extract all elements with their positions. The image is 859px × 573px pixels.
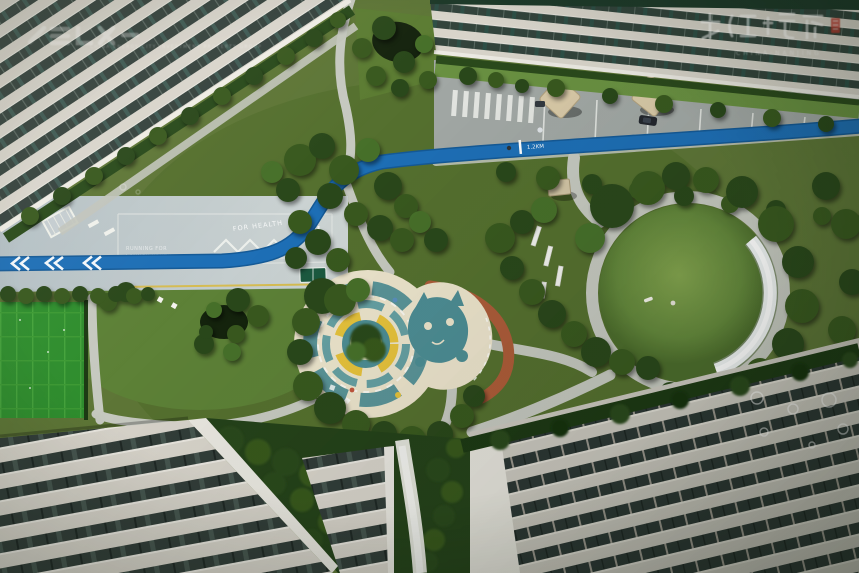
scene-svg: FOR HEALTH RUNNING FOR LAUNCH YOUTH <box>0 0 859 573</box>
red-seal <box>831 18 840 33</box>
person-on-lawn <box>671 301 676 306</box>
parked-object <box>535 101 545 107</box>
turf-field <box>0 300 88 420</box>
pedestrian <box>507 146 511 150</box>
track-distance-marker: 1.2KM <box>527 144 545 151</box>
aerial-photo: FOR HEALTH RUNNING FOR LAUNCH YOUTH <box>0 0 859 573</box>
developer-caption: CHINA ENERGY CITY INVESTMENT PROPERTY GR… <box>90 44 262 50</box>
pedestrian <box>537 127 542 132</box>
project-caption: CHINA·NANJING <box>736 50 822 57</box>
plaza-text-line1: RUNNING FOR <box>126 246 167 252</box>
